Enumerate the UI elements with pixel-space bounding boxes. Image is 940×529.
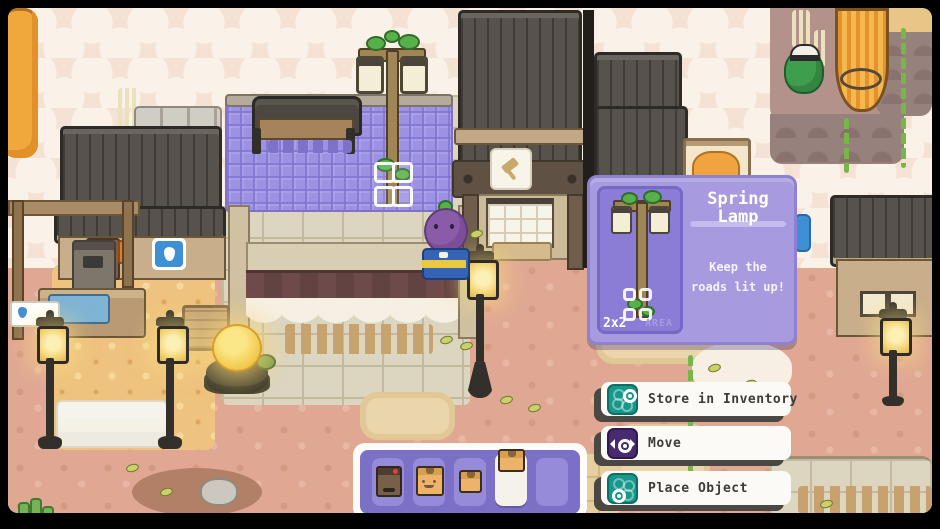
cliff-shelf xyxy=(770,114,904,164)
move-icon xyxy=(607,428,638,459)
dry-grass xyxy=(792,10,810,48)
lamp-lantern-left xyxy=(356,56,384,94)
vine-plant xyxy=(688,355,693,481)
preview-lamp-lantern xyxy=(649,206,670,234)
street-lamp xyxy=(152,310,188,450)
orange-tree-left xyxy=(8,8,38,158)
crate-face-item xyxy=(416,466,444,496)
vine xyxy=(901,28,906,168)
menu-item-label: Store in Inventory xyxy=(648,392,798,407)
storage-icon xyxy=(607,384,638,415)
object-title-line1: Spring xyxy=(686,190,790,208)
object-size-unit: AREA xyxy=(645,318,673,329)
hotbar-slot-1[interactable] xyxy=(372,458,404,506)
fence-row-bottom-right xyxy=(798,486,932,513)
bush-npc-cap xyxy=(790,44,820,61)
glow-orb-creature xyxy=(204,320,274,396)
object-info-panel: 2x2 AREA Spring Lamp Keep the roads lit … xyxy=(587,175,797,345)
right-building-roof xyxy=(830,195,932,267)
vendor-npc xyxy=(420,200,468,282)
object-description-line1: Keep the xyxy=(686,257,790,277)
menu-item-place-object[interactable]: Place Object xyxy=(601,471,791,505)
hotbar-slot-2[interactable] xyxy=(413,458,445,506)
object-description-line2: roads lit up! xyxy=(686,277,790,297)
menu-item-label: Place Object xyxy=(648,481,748,496)
glow-orb xyxy=(212,324,262,372)
table-leg xyxy=(252,128,261,154)
hay-cascade xyxy=(835,8,889,112)
game-viewport: 2x2 AREA Spring Lamp Keep the roads lit … xyxy=(8,8,932,513)
menu-item-move[interactable]: Move xyxy=(601,426,791,460)
shipping-machine-item xyxy=(376,466,402,497)
hammer-sign xyxy=(490,148,532,190)
goods-row xyxy=(268,140,352,153)
shop-sign xyxy=(152,238,186,270)
hammer-shop-pillar xyxy=(567,194,584,270)
hotbar-slot-3[interactable] xyxy=(454,458,486,506)
rock xyxy=(200,478,238,506)
tan-patch xyxy=(360,392,455,440)
dirt-oval xyxy=(132,468,262,513)
shoji-window xyxy=(486,198,554,248)
menu-item-label: Move xyxy=(648,436,681,451)
grid-cell xyxy=(392,186,413,207)
vine xyxy=(844,118,849,173)
preview-lamp-lantern xyxy=(611,206,632,234)
hotbar-slot-4-selected[interactable] xyxy=(495,453,527,506)
roof-beam xyxy=(454,128,586,145)
menu-item-store-in-inventory[interactable]: Store in Inventory xyxy=(601,382,791,416)
object-preview: 2x2 AREA xyxy=(597,186,683,334)
hotbar xyxy=(353,443,587,513)
grid-cell xyxy=(392,162,413,183)
object-title-line2: Lamp xyxy=(686,208,790,226)
preview-leaves xyxy=(643,190,662,204)
stall-beam xyxy=(8,200,140,216)
door-mat xyxy=(492,242,552,261)
preview-leaves xyxy=(621,192,638,205)
green-sprouts xyxy=(18,498,58,513)
hotbar-slot-5[interactable] xyxy=(536,458,568,506)
street-lamp xyxy=(32,310,68,450)
small-crate-item xyxy=(459,470,482,493)
placement-grid[interactable] xyxy=(374,162,418,206)
street-lamp xyxy=(876,302,910,408)
crate-item xyxy=(498,449,525,472)
fence-row-center xyxy=(285,324,433,354)
lamp-lantern-right xyxy=(400,56,428,94)
object-size: 2x2 xyxy=(603,316,626,331)
hay-ring xyxy=(840,68,882,90)
stall-post xyxy=(122,200,134,288)
stall-shelf xyxy=(258,118,354,140)
place-icon xyxy=(607,473,638,504)
